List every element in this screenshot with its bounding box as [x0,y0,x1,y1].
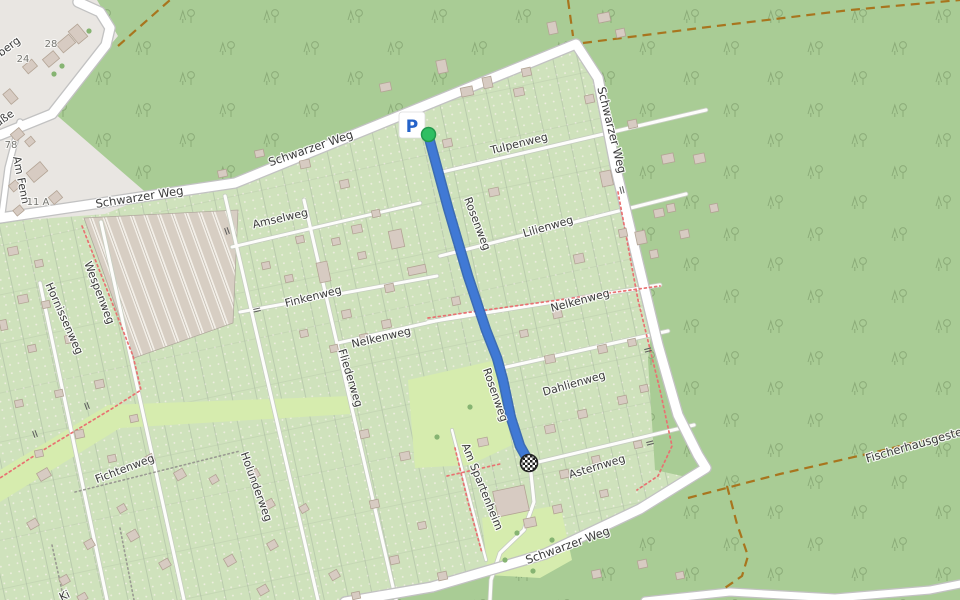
housenumber-28: 28 [45,39,58,50]
housenumber-11a: 11 A [27,197,50,208]
housenumber-24: 24 [17,54,30,65]
housenumber-78: 78 [5,140,18,151]
route-destination-marker[interactable] [521,455,538,472]
map-viewport[interactable]: Schwarzer Weg Schwarzer Weg Schwarzer We… [0,0,960,600]
route-start-marker[interactable] [422,128,436,142]
map-canvas[interactable]: Schwarzer Weg Schwarzer Weg Schwarzer We… [0,0,960,600]
parking-icon: P [406,117,418,137]
